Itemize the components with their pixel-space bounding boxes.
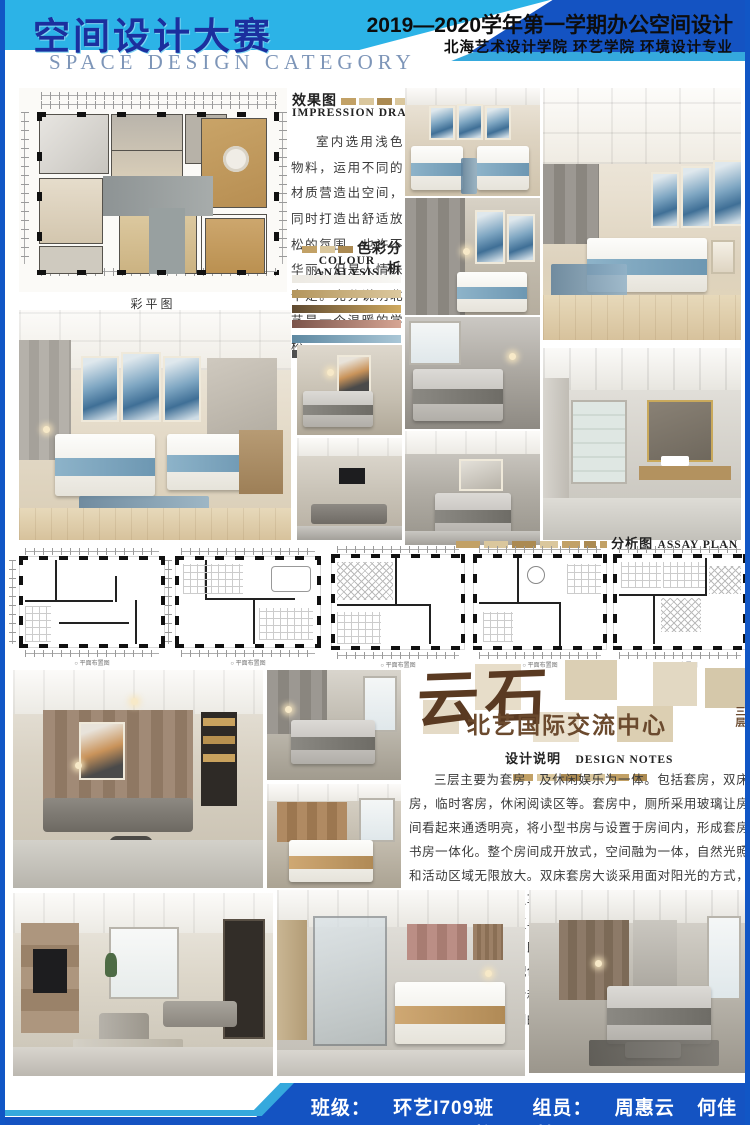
render-bedroom-art-small [297, 345, 402, 435]
swatch-tan [292, 290, 401, 298]
course-title: 2019—2020学年第一学期办公空间设计 [313, 9, 733, 39]
logo-subtitle: 北艺国际交流中心 [467, 706, 667, 740]
footer-cyan-stripe [5, 1110, 260, 1116]
line-plan-2-caption: ○ 平面布置图 [175, 658, 321, 667]
design-notes-label-en: DESIGN NOTES [575, 754, 673, 766]
swatch-blue [292, 335, 401, 343]
render-living-tv-small [297, 438, 402, 540]
line-plan-3 [331, 554, 465, 650]
render-bathroom-vanity [543, 348, 741, 540]
design-notes-label-cn: 设计说明 [505, 751, 561, 766]
render-gray-bedroom-wide [405, 431, 540, 545]
members-label: 组员： [532, 1098, 592, 1119]
swatch-rose-brown [292, 320, 401, 328]
color-floor-plan [19, 88, 287, 292]
line-plan-5 [613, 554, 747, 650]
impression-label-cn: 效果图 [292, 92, 337, 108]
footer-credits: 班级： 环艺I709班 组员： 周惠云 何佳怡 张婕 [295, 1093, 745, 1125]
render-gray-bedroom-closeup [405, 317, 540, 429]
render-bedroom-blue-art [405, 198, 540, 315]
render-gray-bedroom-d [529, 890, 747, 1073]
render-tan-bedroom [267, 784, 401, 888]
design-poster: 空间设计大赛 SPACE DESIGN CATEGORY 2019—2020学年… [0, 0, 750, 1125]
render-bedroom-glass-shower [277, 890, 525, 1076]
class-label: 班级： [311, 1098, 371, 1119]
render-twin-bedroom-a [405, 88, 540, 196]
logo-floor: 三层 [731, 706, 746, 728]
render-twin-bedroom-hero [19, 310, 291, 540]
line-plan-1-caption: ○ 平面布置图 [19, 658, 165, 667]
swatch-light-gray [292, 275, 401, 283]
colour-analysis-decor-blocks [302, 246, 353, 253]
render-living-tv-room [13, 893, 273, 1076]
line-plan-4 [473, 554, 607, 650]
member-name: 何佳怡 [475, 1098, 737, 1125]
render-suite-long-view [543, 88, 741, 340]
swatch-brown-gold [292, 305, 401, 313]
render-living-room-large [13, 670, 263, 888]
line-plan-1 [19, 556, 165, 648]
line-plan-2 [175, 556, 321, 648]
member-name: 周惠云 [615, 1098, 675, 1119]
class-value: 环艺I709班 [393, 1098, 494, 1119]
render-gray-bedroom-c [267, 670, 401, 780]
school-name: 北海艺术设计学院 环艺学院 环境设计专业 [313, 36, 733, 57]
